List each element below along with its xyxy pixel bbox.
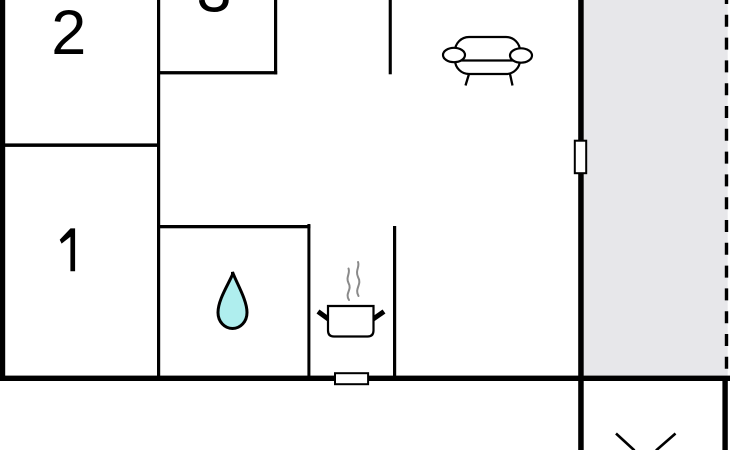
svg-text:3: 3: [196, 0, 231, 25]
svg-text:2: 2: [51, 0, 86, 68]
